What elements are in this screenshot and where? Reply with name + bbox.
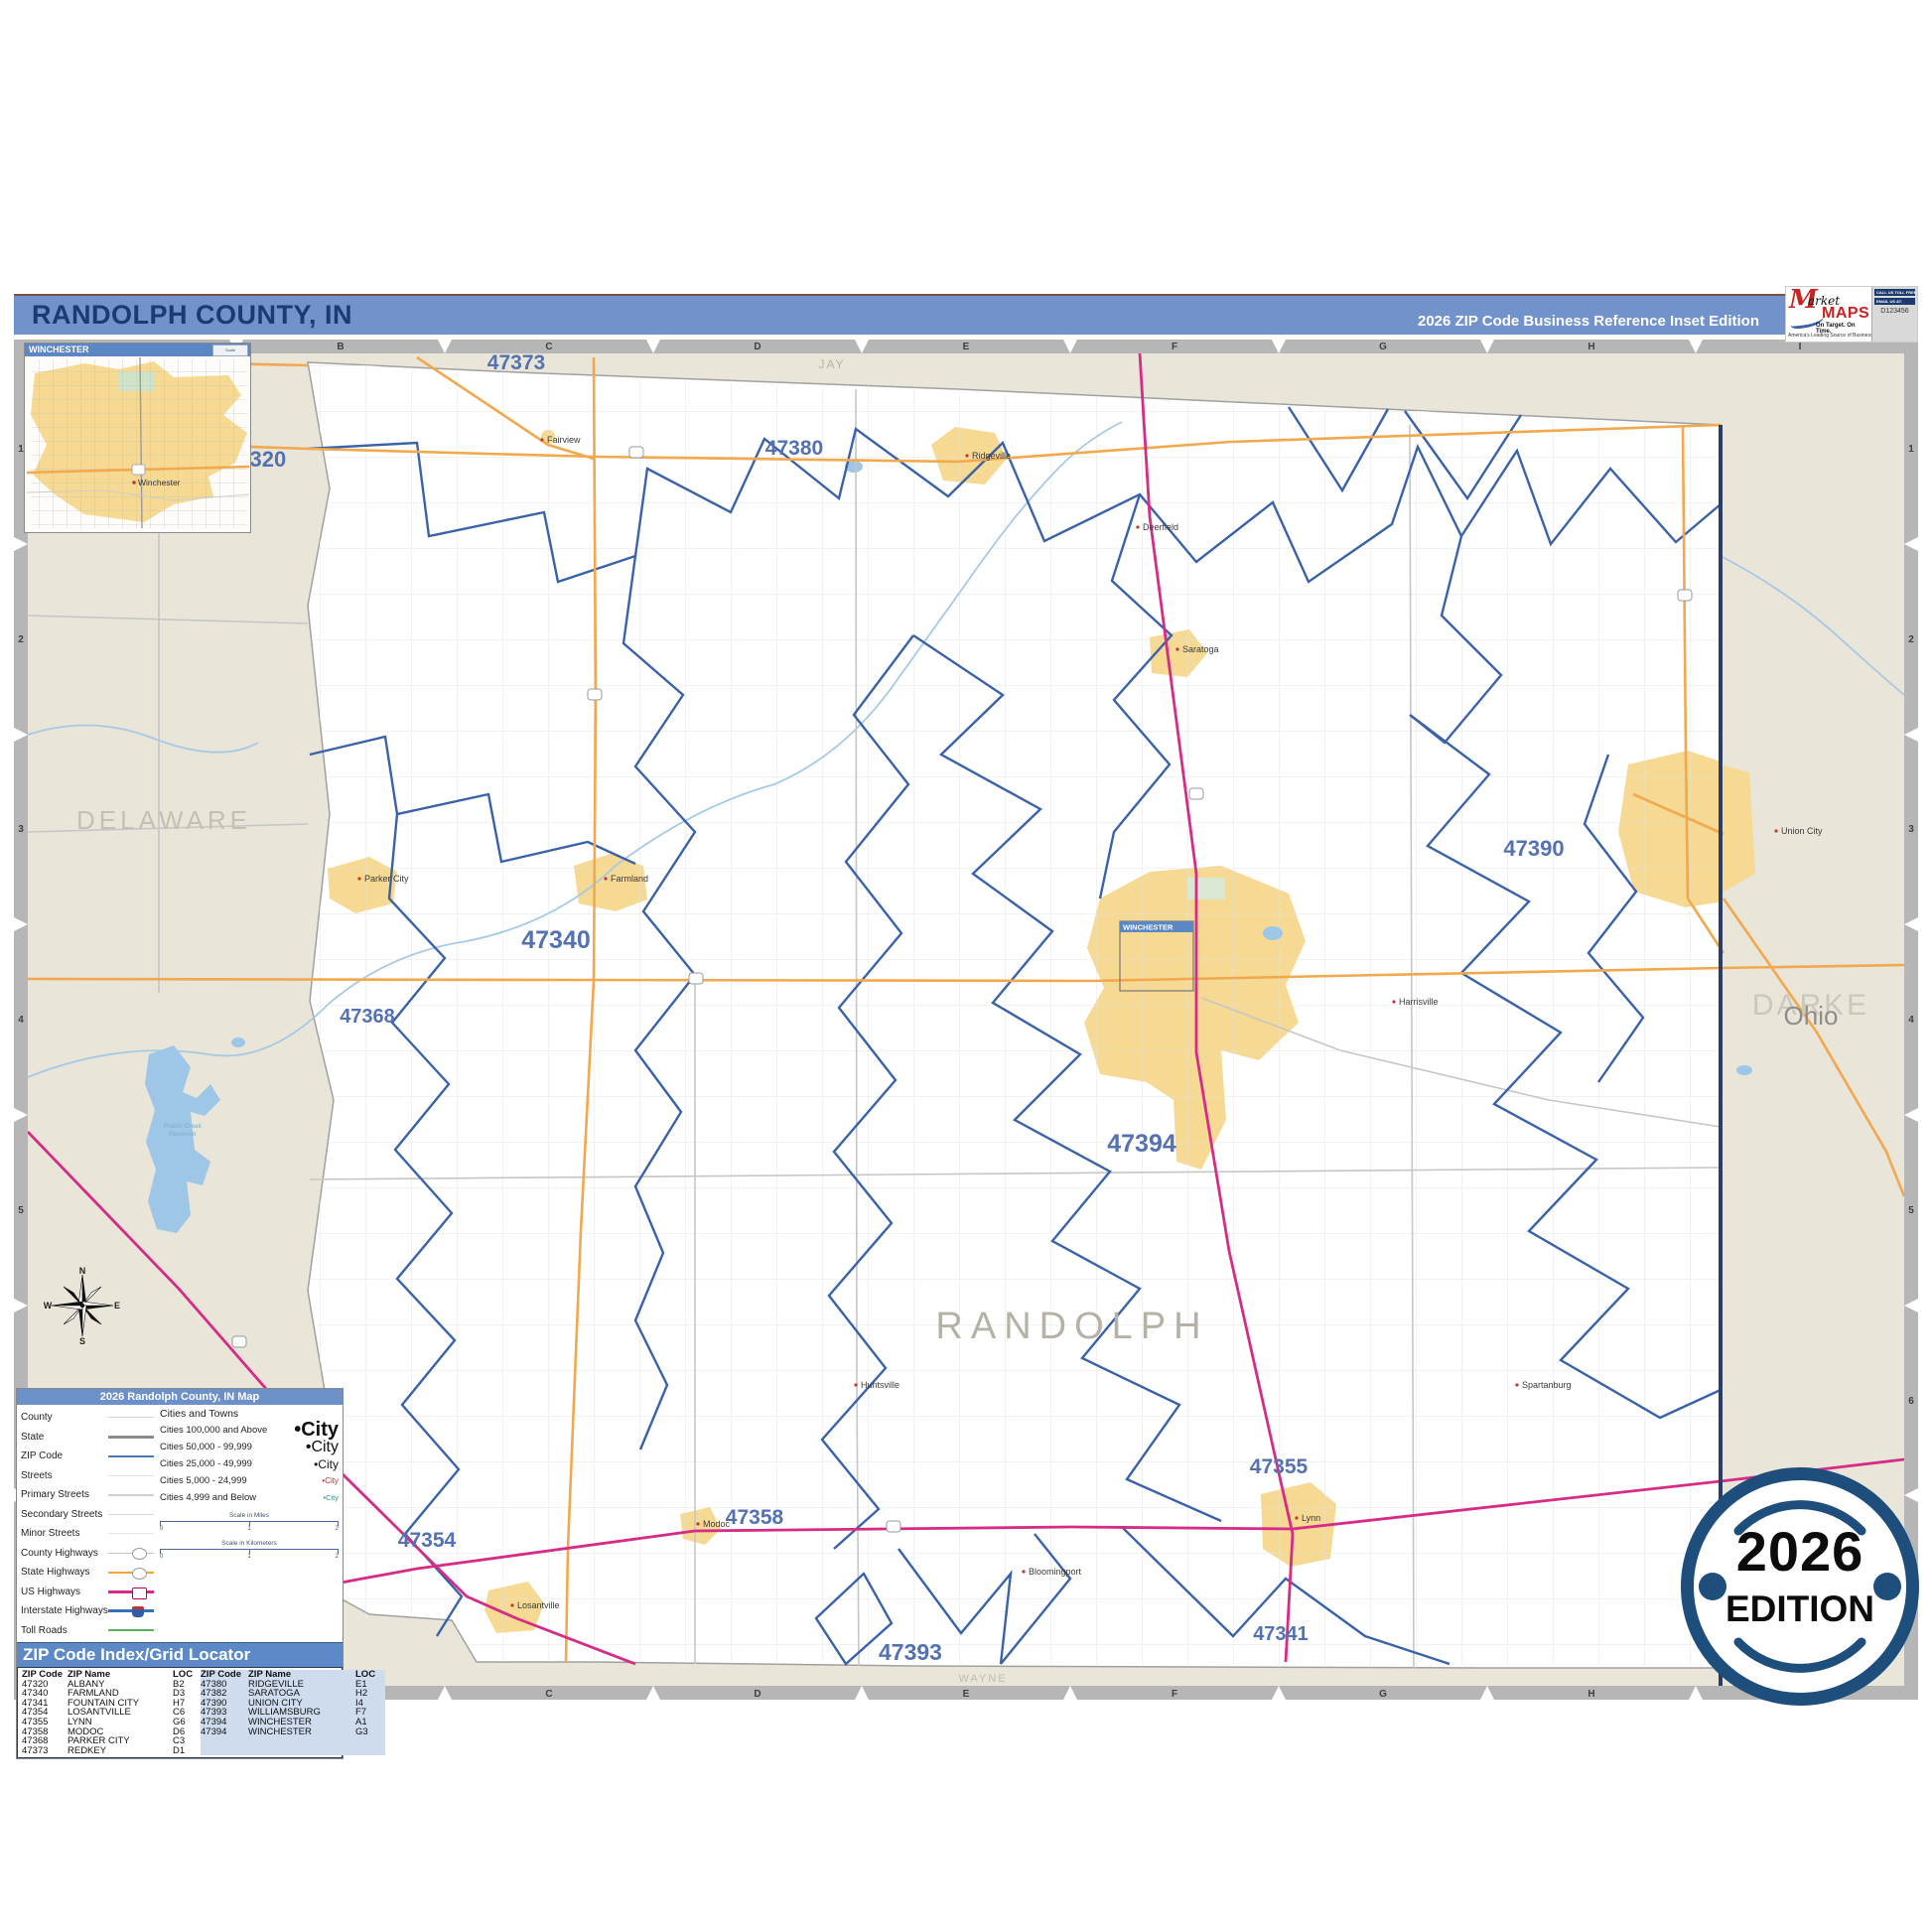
inset-scale-widget: Scale bbox=[212, 345, 248, 356]
header-bar: RANDOLPH COUNTY, IN 2026 ZIP Code Busine… bbox=[14, 294, 1918, 335]
svg-text:H: H bbox=[1587, 342, 1594, 352]
compass-s: S bbox=[79, 1336, 85, 1344]
svg-text:G: G bbox=[1379, 342, 1387, 352]
zip-line-sample bbox=[108, 1455, 154, 1457]
svg-text:1: 1 bbox=[1908, 444, 1914, 455]
svg-text:Lynn: Lynn bbox=[1302, 1513, 1320, 1523]
zip-47394: 47394 bbox=[1107, 1130, 1176, 1158]
zip-47390: 47390 bbox=[1503, 836, 1564, 861]
legend-title: 2026 Randolph County, IN Map bbox=[17, 1389, 343, 1405]
svg-text:2: 2 bbox=[18, 634, 24, 645]
scale-bars: Scale in Miles 012 Scale in Kilometers 0… bbox=[160, 1512, 339, 1560]
svg-text:Parker City: Parker City bbox=[364, 874, 409, 884]
svg-text:Reservoir: Reservoir bbox=[169, 1131, 198, 1138]
contact-email: EMAIL US AT: bbox=[1874, 298, 1915, 305]
zip-47341: 47341 bbox=[1253, 1623, 1309, 1645]
zip-47340: 47340 bbox=[521, 926, 591, 954]
compass-n: N bbox=[79, 1267, 86, 1276]
compass-rose: N E S W bbox=[44, 1267, 121, 1349]
zip-47355: 47355 bbox=[1250, 1455, 1309, 1478]
svg-text:D: D bbox=[754, 1689, 760, 1700]
svg-text:4: 4 bbox=[1908, 1015, 1914, 1026]
page-title: RANDOLPH COUNTY, IN bbox=[14, 300, 352, 331]
us-hwy-sample bbox=[108, 1590, 154, 1593]
label-jay: JAY bbox=[818, 357, 845, 371]
svg-text:B: B bbox=[337, 342, 344, 352]
svg-text:E: E bbox=[963, 1689, 970, 1700]
zip-index-table: ZIP Code ZIP Name LOC ZIP Code ZIP Name … bbox=[17, 1667, 343, 1758]
compass-e: E bbox=[114, 1301, 120, 1311]
svg-text:Bloomingport: Bloomingport bbox=[1029, 1567, 1082, 1577]
logo-contact-box: CALL US TOLL FREE EMAIL US AT: D123456 bbox=[1871, 287, 1917, 342]
legend-panel: 2026 Randolph County, IN Map County Stat… bbox=[16, 1388, 344, 1759]
label-wayne: WAYNE bbox=[958, 1673, 1007, 1685]
svg-text:Harrisville: Harrisville bbox=[1399, 997, 1439, 1007]
label-delaware: DELAWARE bbox=[76, 805, 251, 835]
interstate-sample bbox=[108, 1609, 154, 1612]
svg-text:F: F bbox=[1172, 342, 1177, 352]
svg-text:Deerfield: Deerfield bbox=[1143, 522, 1178, 532]
winchester-inset: Winchester WINCHESTER Scale bbox=[24, 343, 251, 533]
streets-line-sample bbox=[108, 1475, 154, 1476]
minor-streets-sample bbox=[108, 1533, 154, 1534]
legend-line-items: County State ZIP Code Streets Primary St… bbox=[21, 1408, 154, 1640]
zip-47358: 47358 bbox=[726, 1506, 784, 1529]
primary-streets-sample bbox=[108, 1494, 154, 1496]
edition-badge: 2026 EDITION bbox=[1681, 1467, 1919, 1706]
svg-text:E: E bbox=[963, 342, 970, 352]
svg-text:C: C bbox=[545, 1689, 552, 1700]
compass-w: W bbox=[44, 1301, 53, 1311]
edition-subtitle: 2026 ZIP Code Business Reference Inset E… bbox=[1418, 313, 1759, 330]
legend-cities: Cities and Towns Cities 100,000 and Abov… bbox=[154, 1408, 339, 1640]
svg-text:Saratoga: Saratoga bbox=[1182, 644, 1219, 654]
svg-text:5: 5 bbox=[1908, 1205, 1914, 1216]
svg-text:G: G bbox=[1379, 1689, 1387, 1700]
edition-year: 2026 bbox=[1681, 1519, 1919, 1584]
label-randolph: RANDOLPH bbox=[935, 1306, 1208, 1347]
logo-maps-text: MAPS bbox=[1822, 305, 1869, 323]
svg-text:I: I bbox=[1799, 342, 1802, 352]
toll-roads-sample bbox=[108, 1629, 154, 1631]
svg-text:3: 3 bbox=[18, 824, 24, 835]
svg-text:C: C bbox=[545, 342, 552, 352]
inset-city-label: Winchester bbox=[138, 478, 181, 487]
zip-47368: 47368 bbox=[340, 1006, 395, 1028]
product-code: D123456 bbox=[1874, 308, 1915, 315]
svg-text:5: 5 bbox=[18, 1205, 24, 1216]
svg-text:Losantville: Losantville bbox=[517, 1600, 560, 1610]
contact-phone: CALL US TOLL FREE bbox=[1874, 289, 1915, 296]
logo-art: M arket MAPS On Target. On Time. America… bbox=[1786, 287, 1871, 342]
marketmaps-logo: M arket MAPS On Target. On Time. America… bbox=[1785, 286, 1918, 343]
svg-text:2: 2 bbox=[1908, 634, 1914, 645]
svg-text:Fairview: Fairview bbox=[547, 435, 581, 445]
county-hwy-sample bbox=[108, 1553, 154, 1554]
svg-text:F: F bbox=[1172, 1689, 1177, 1700]
edition-word: EDITION bbox=[1681, 1588, 1919, 1630]
zip-47393: 47393 bbox=[879, 1639, 942, 1665]
svg-text:Spartanburg: Spartanburg bbox=[1522, 1380, 1572, 1390]
svg-text:Prairie Creek: Prairie Creek bbox=[164, 1123, 203, 1130]
county-line-sample bbox=[108, 1417, 154, 1418]
secondary-streets-sample bbox=[108, 1514, 154, 1515]
state-hwy-sample bbox=[108, 1572, 154, 1574]
svg-text:3: 3 bbox=[1908, 824, 1914, 835]
svg-text:Union City: Union City bbox=[1781, 826, 1823, 836]
zip-47380: 47380 bbox=[765, 437, 823, 460]
map-page: AB CD EF GH I AB CD EF GH I 12 34 56 7 1… bbox=[0, 0, 1932, 1932]
svg-text:H: H bbox=[1587, 1689, 1594, 1700]
zip-47354: 47354 bbox=[398, 1529, 457, 1552]
label-ohio: Ohio bbox=[1784, 1001, 1839, 1031]
zip-47373: 47373 bbox=[487, 351, 545, 374]
zip-index-title: ZIP Code Index/Grid Locator bbox=[17, 1642, 343, 1667]
svg-text:6: 6 bbox=[1908, 1396, 1914, 1407]
svg-text:Ridgeville: Ridgeville bbox=[972, 451, 1011, 461]
state-line-sample bbox=[108, 1436, 154, 1439]
svg-text:4: 4 bbox=[18, 1015, 24, 1026]
svg-text:D: D bbox=[754, 342, 760, 352]
svg-text:Huntsville: Huntsville bbox=[861, 1380, 899, 1390]
svg-text:WINCHESTER: WINCHESTER bbox=[1123, 923, 1173, 932]
svg-text:Farmland: Farmland bbox=[611, 874, 648, 884]
